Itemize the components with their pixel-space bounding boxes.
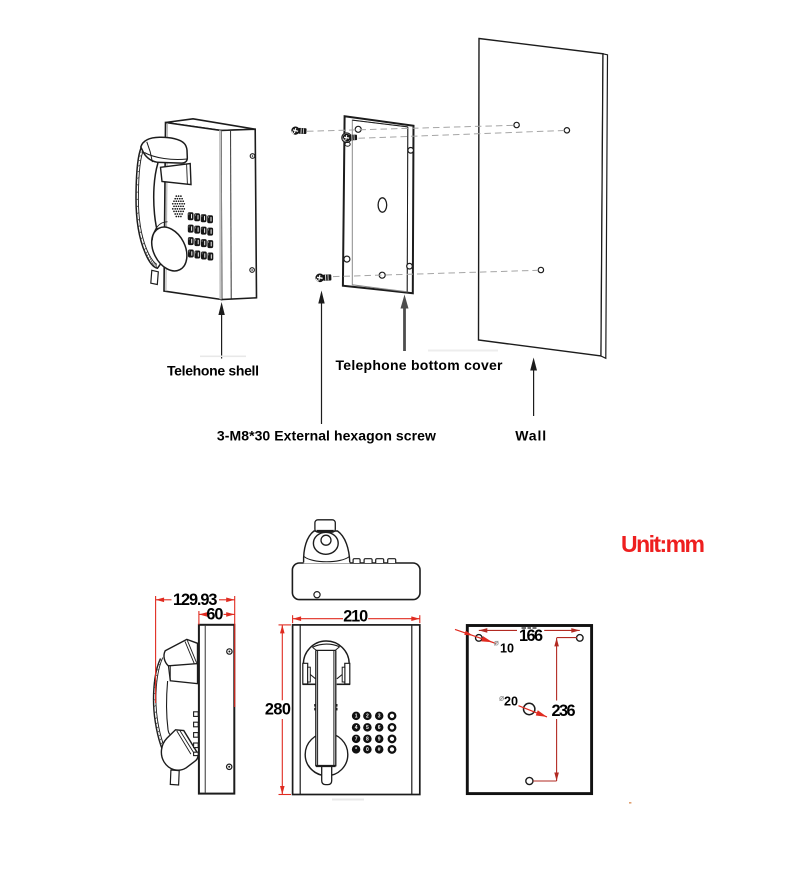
svg-text:20: 20	[504, 694, 518, 708]
svg-text:Telephone bottom cover: Telephone bottom cover	[336, 357, 504, 373]
svg-text:3-M8*30 External hexagon screw: 3-M8*30 External hexagon screw	[217, 428, 436, 444]
svg-text:60: 60	[206, 605, 223, 623]
svg-text:Wall: Wall	[515, 428, 546, 444]
svg-text:6: 6	[378, 725, 381, 731]
svg-text:0: 0	[366, 747, 369, 753]
svg-text:Telehone shell: Telehone shell	[167, 363, 259, 379]
svg-text:3: 3	[378, 714, 381, 720]
svg-text:2: 2	[366, 714, 369, 720]
svg-text:8: 8	[366, 737, 369, 743]
svg-text:Unit:mm: Unit:mm	[621, 531, 705, 557]
svg-text:166: 166	[519, 627, 543, 645]
svg-text:210: 210	[343, 607, 368, 625]
svg-text:9: 9	[378, 737, 381, 743]
svg-text:#: #	[378, 747, 381, 753]
svg-text:1: 1	[355, 714, 358, 720]
svg-text:5: 5	[366, 725, 369, 731]
svg-text:10: 10	[500, 641, 514, 655]
svg-text:4: 4	[355, 725, 358, 731]
svg-text:*: *	[355, 747, 357, 753]
svg-text:236: 236	[552, 702, 576, 720]
svg-text:280: 280	[265, 701, 291, 719]
svg-text:7: 7	[355, 737, 358, 743]
